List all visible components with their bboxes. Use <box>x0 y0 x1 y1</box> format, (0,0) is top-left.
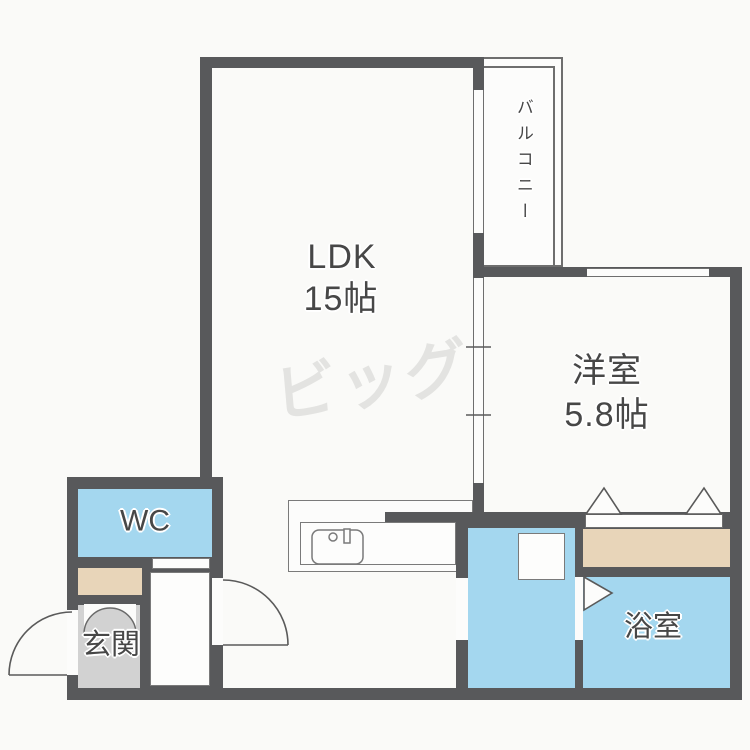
closet-floor <box>583 529 730 567</box>
wall-top <box>200 57 484 68</box>
wall-left <box>200 57 212 490</box>
room-western-label: 洋室 <box>572 354 642 390</box>
window-western-room <box>587 268 709 277</box>
entrance-door-swing-icon <box>9 612 72 675</box>
wall-bottom <box>67 688 742 700</box>
washing-machine-pan <box>518 533 565 580</box>
wall-balcony-bottom <box>473 267 585 277</box>
watermark-logo: ビッグ <box>270 315 473 436</box>
closet-folding-door-icon <box>586 488 721 514</box>
room-entrance-label: 玄関 <box>82 630 140 660</box>
balcony-inner-line-right <box>553 66 555 267</box>
kitchen-counter <box>300 522 456 565</box>
door-gap-bathroom <box>575 577 583 640</box>
balcony-inner-line-top <box>481 66 554 68</box>
window-ldk-balcony <box>473 90 484 233</box>
door-gap-washroom <box>456 578 468 640</box>
closet-folding-door-track <box>585 514 723 528</box>
shoe-cabinet-door <box>152 558 210 569</box>
room-ldk-size: 15帖 <box>304 282 379 318</box>
door-gap-hall <box>212 578 223 645</box>
opening-ldk-western-room <box>473 278 484 483</box>
room-western-size: 5.8帖 <box>564 398 649 434</box>
room-bathroom-label: 浴室 <box>624 612 682 642</box>
balcony-label: バルコニー <box>514 98 532 228</box>
door-gap-entrance <box>67 610 78 675</box>
hall-door-swing-icon <box>223 580 288 645</box>
floorplan: ビッグ <box>0 0 750 750</box>
shoe-cabinet <box>150 572 210 686</box>
entrance-storage-floor <box>78 568 142 595</box>
room-wc-label: WC <box>120 505 170 537</box>
room-ldk-label: LDK <box>307 240 376 276</box>
